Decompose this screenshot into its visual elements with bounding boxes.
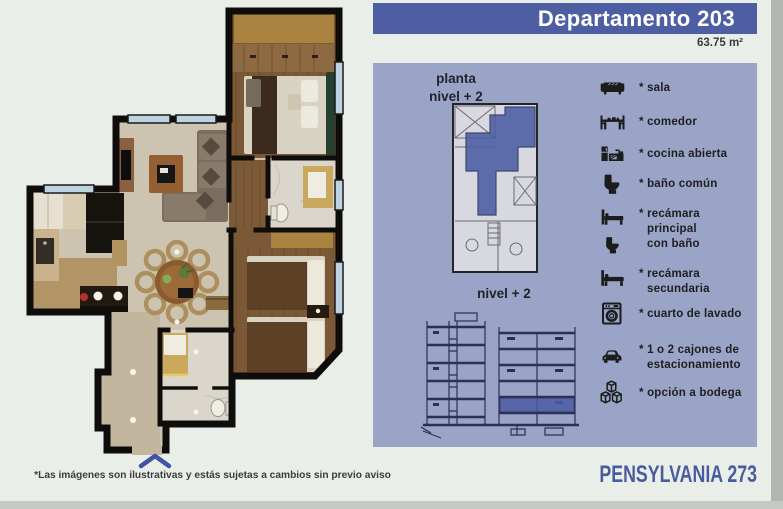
car-icon [595,343,629,367]
legend-item-bano: * baño común [595,171,717,198]
bed-icon [595,267,629,291]
highlighted-level [500,398,574,412]
master-bedroom [229,11,339,158]
legend-label: * baño común [639,177,717,192]
legend-label: * comedor [639,115,697,130]
info-panel: planta nivel + 2 nivel + 2 [373,63,757,447]
master-bathroom [268,158,339,230]
secondary-bedroom [229,230,339,376]
second-bathroom [160,330,232,424]
legend-label: * cocina abierta [639,147,727,162]
brand-logo: PENSYLVANIA 273 [473,461,757,489]
legend-label: * opción a bodega [639,386,741,401]
title-banner: Departamento 203 [373,3,757,34]
page-edge-right [771,0,783,509]
legend-item-estacionamiento: * 1 o 2 cajones de estacionamiento [595,343,741,373]
disclaimer-text: *Las imágenes son ilustrativas y estás s… [15,470,410,481]
legend-item-bodega: * opción a bodega [595,379,741,407]
legend-label: * recámara principal con baño [639,207,700,252]
legend-item-cocina: * cocina abierta [595,141,727,167]
mini-building-section [421,307,581,443]
brochure-page: Departamento 203 63.75 m² planta nivel +… [0,0,783,509]
area-label: 63.75 m² [373,37,757,49]
sofa-icon [595,75,629,101]
entrance-opening [132,445,162,455]
floor-plan-render [0,0,370,470]
bed-with-bath-icon [595,207,629,259]
entrance-direction-icon [141,456,169,466]
legend-label: * recámara secundaria [639,267,710,297]
legend-item-sala: * sala [595,75,670,101]
legend-item-lavado: * cuarto de lavado [595,301,742,327]
legend-label: * cuarto de lavado [639,307,742,322]
toilet-icon [595,171,629,198]
planta-level-label: planta nivel + 2 [391,70,521,106]
mini-floor-plan [452,103,538,273]
washing-machine-icon [595,301,629,327]
legend-label: * sala [639,81,670,96]
legend-item-recamara-secundaria: * recámara secundaria [595,267,710,297]
legend-item-comedor: * comedor [595,109,697,135]
legend-item-recamara-principal: * recámara principal con baño [595,207,700,259]
storage-boxes-icon [595,379,629,407]
legend-label: * 1 o 2 cajones de estacionamiento [639,343,741,373]
dining-table-icon [595,109,629,135]
page-title: Departamento 203 [538,6,735,31]
kitchen-icon [595,141,629,167]
nivel-level-label: nivel + 2 [429,286,579,301]
page-edge-bottom [0,501,783,509]
